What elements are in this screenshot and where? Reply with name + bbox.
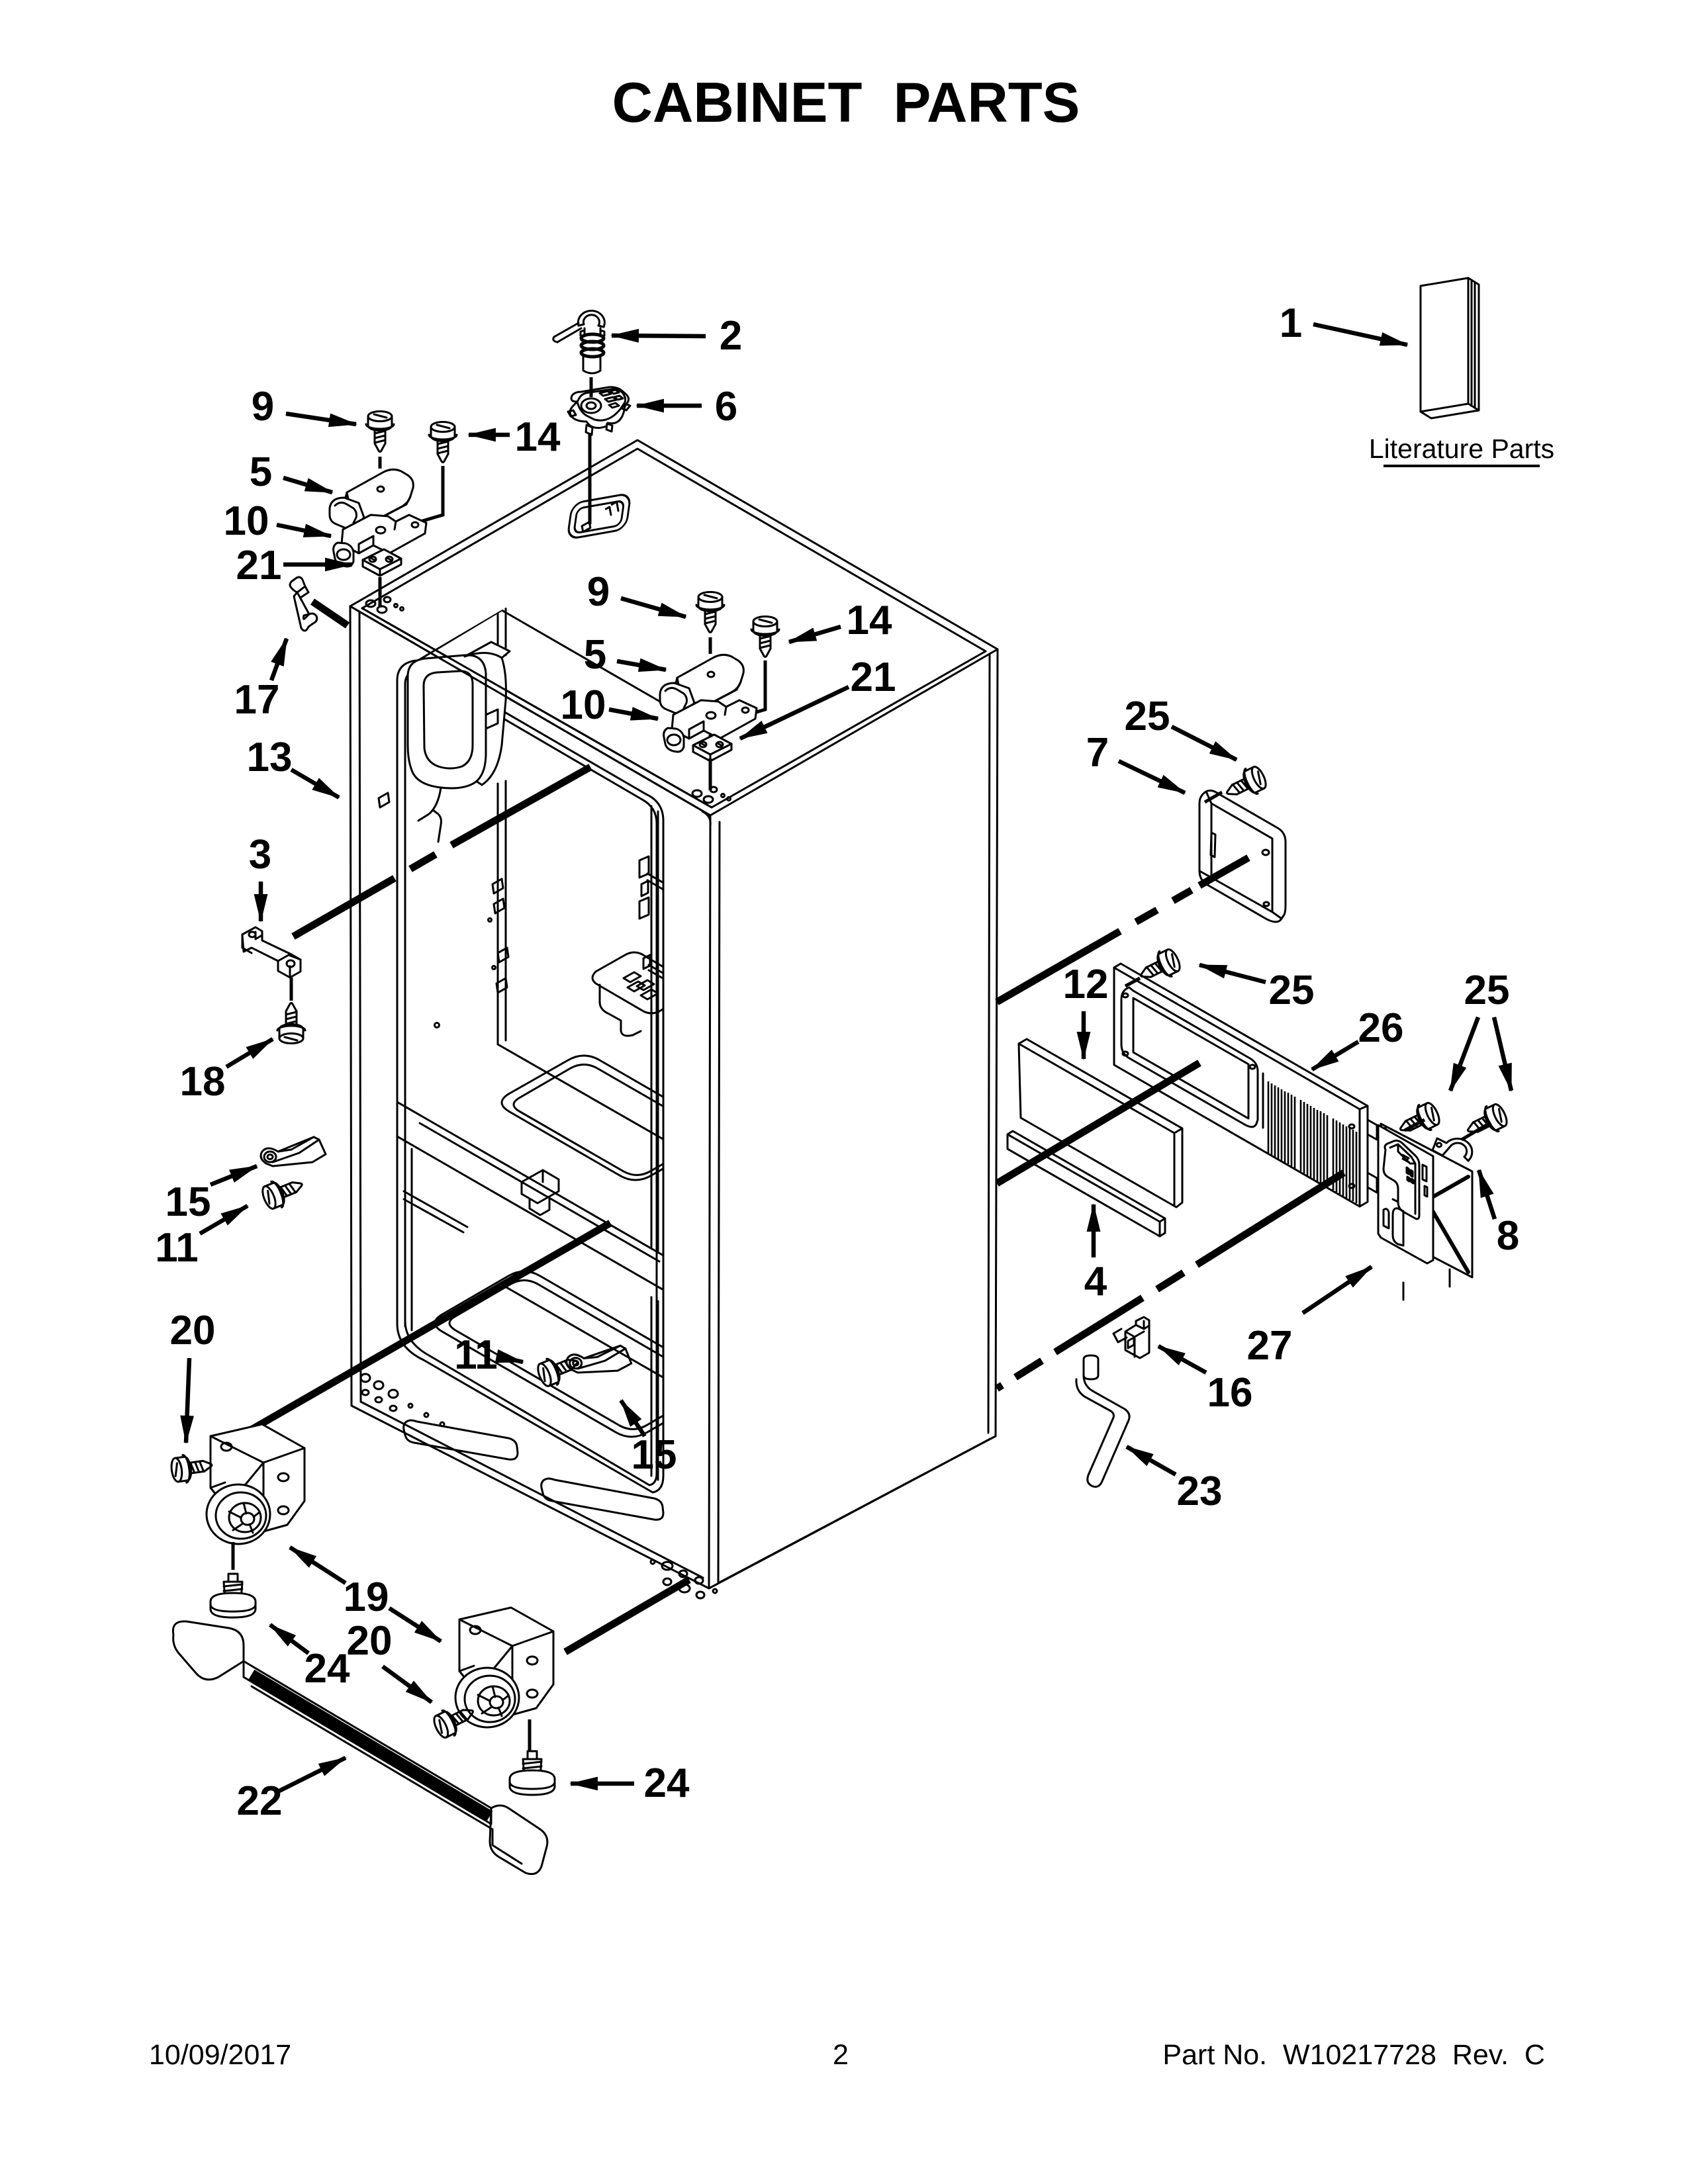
svg-text:14: 14 — [847, 598, 892, 643]
svg-text:23: 23 — [1177, 1469, 1223, 1514]
svg-text:Literature Parts: Literature Parts — [1369, 433, 1554, 464]
svg-text:25: 25 — [1269, 968, 1315, 1013]
svg-text:24: 24 — [644, 1760, 690, 1806]
svg-text:21: 21 — [236, 543, 282, 588]
svg-text:19: 19 — [344, 1574, 389, 1620]
svg-text:22: 22 — [237, 1778, 283, 1824]
svg-text:2: 2 — [833, 2039, 849, 2071]
svg-text:4: 4 — [1084, 1259, 1107, 1304]
svg-text:11: 11 — [155, 1225, 199, 1271]
svg-text:18: 18 — [180, 1059, 226, 1105]
svg-text:15: 15 — [632, 1432, 677, 1478]
svg-text:25: 25 — [1464, 968, 1510, 1013]
svg-text:2: 2 — [720, 313, 742, 359]
svg-text:11: 11 — [454, 1332, 498, 1378]
svg-text:10: 10 — [561, 682, 606, 728]
svg-text:27: 27 — [1247, 1323, 1293, 1369]
svg-text:24: 24 — [305, 1646, 350, 1692]
svg-text:17: 17 — [234, 677, 280, 723]
svg-text:20: 20 — [170, 1308, 216, 1353]
svg-text:1: 1 — [1280, 300, 1302, 346]
svg-text:9: 9 — [587, 569, 610, 615]
svg-text:14: 14 — [515, 414, 561, 460]
svg-text:6: 6 — [715, 384, 737, 430]
svg-text:8: 8 — [1497, 1213, 1519, 1259]
svg-text:3: 3 — [249, 832, 271, 878]
svg-text:CABINET PARTS: CABINET PARTS — [612, 71, 1080, 134]
svg-text:13: 13 — [247, 735, 293, 780]
svg-text:10: 10 — [224, 498, 269, 544]
svg-text:21: 21 — [851, 655, 896, 700]
svg-text:Part No. W10217728 Rev. C: Part No. W10217728 Rev. C — [1162, 2039, 1545, 2071]
svg-text:20: 20 — [347, 1618, 393, 1664]
svg-text:12: 12 — [1063, 962, 1109, 1007]
svg-text:10/09/2017: 10/09/2017 — [149, 2039, 291, 2071]
svg-text:5: 5 — [250, 449, 272, 495]
svg-text:26: 26 — [1358, 1005, 1404, 1051]
svg-text:15: 15 — [165, 1179, 211, 1225]
svg-text:9: 9 — [252, 384, 274, 430]
svg-text:16: 16 — [1207, 1370, 1253, 1416]
svg-text:5: 5 — [584, 632, 606, 678]
svg-text:25: 25 — [1125, 694, 1170, 739]
svg-text:7: 7 — [1086, 730, 1109, 776]
